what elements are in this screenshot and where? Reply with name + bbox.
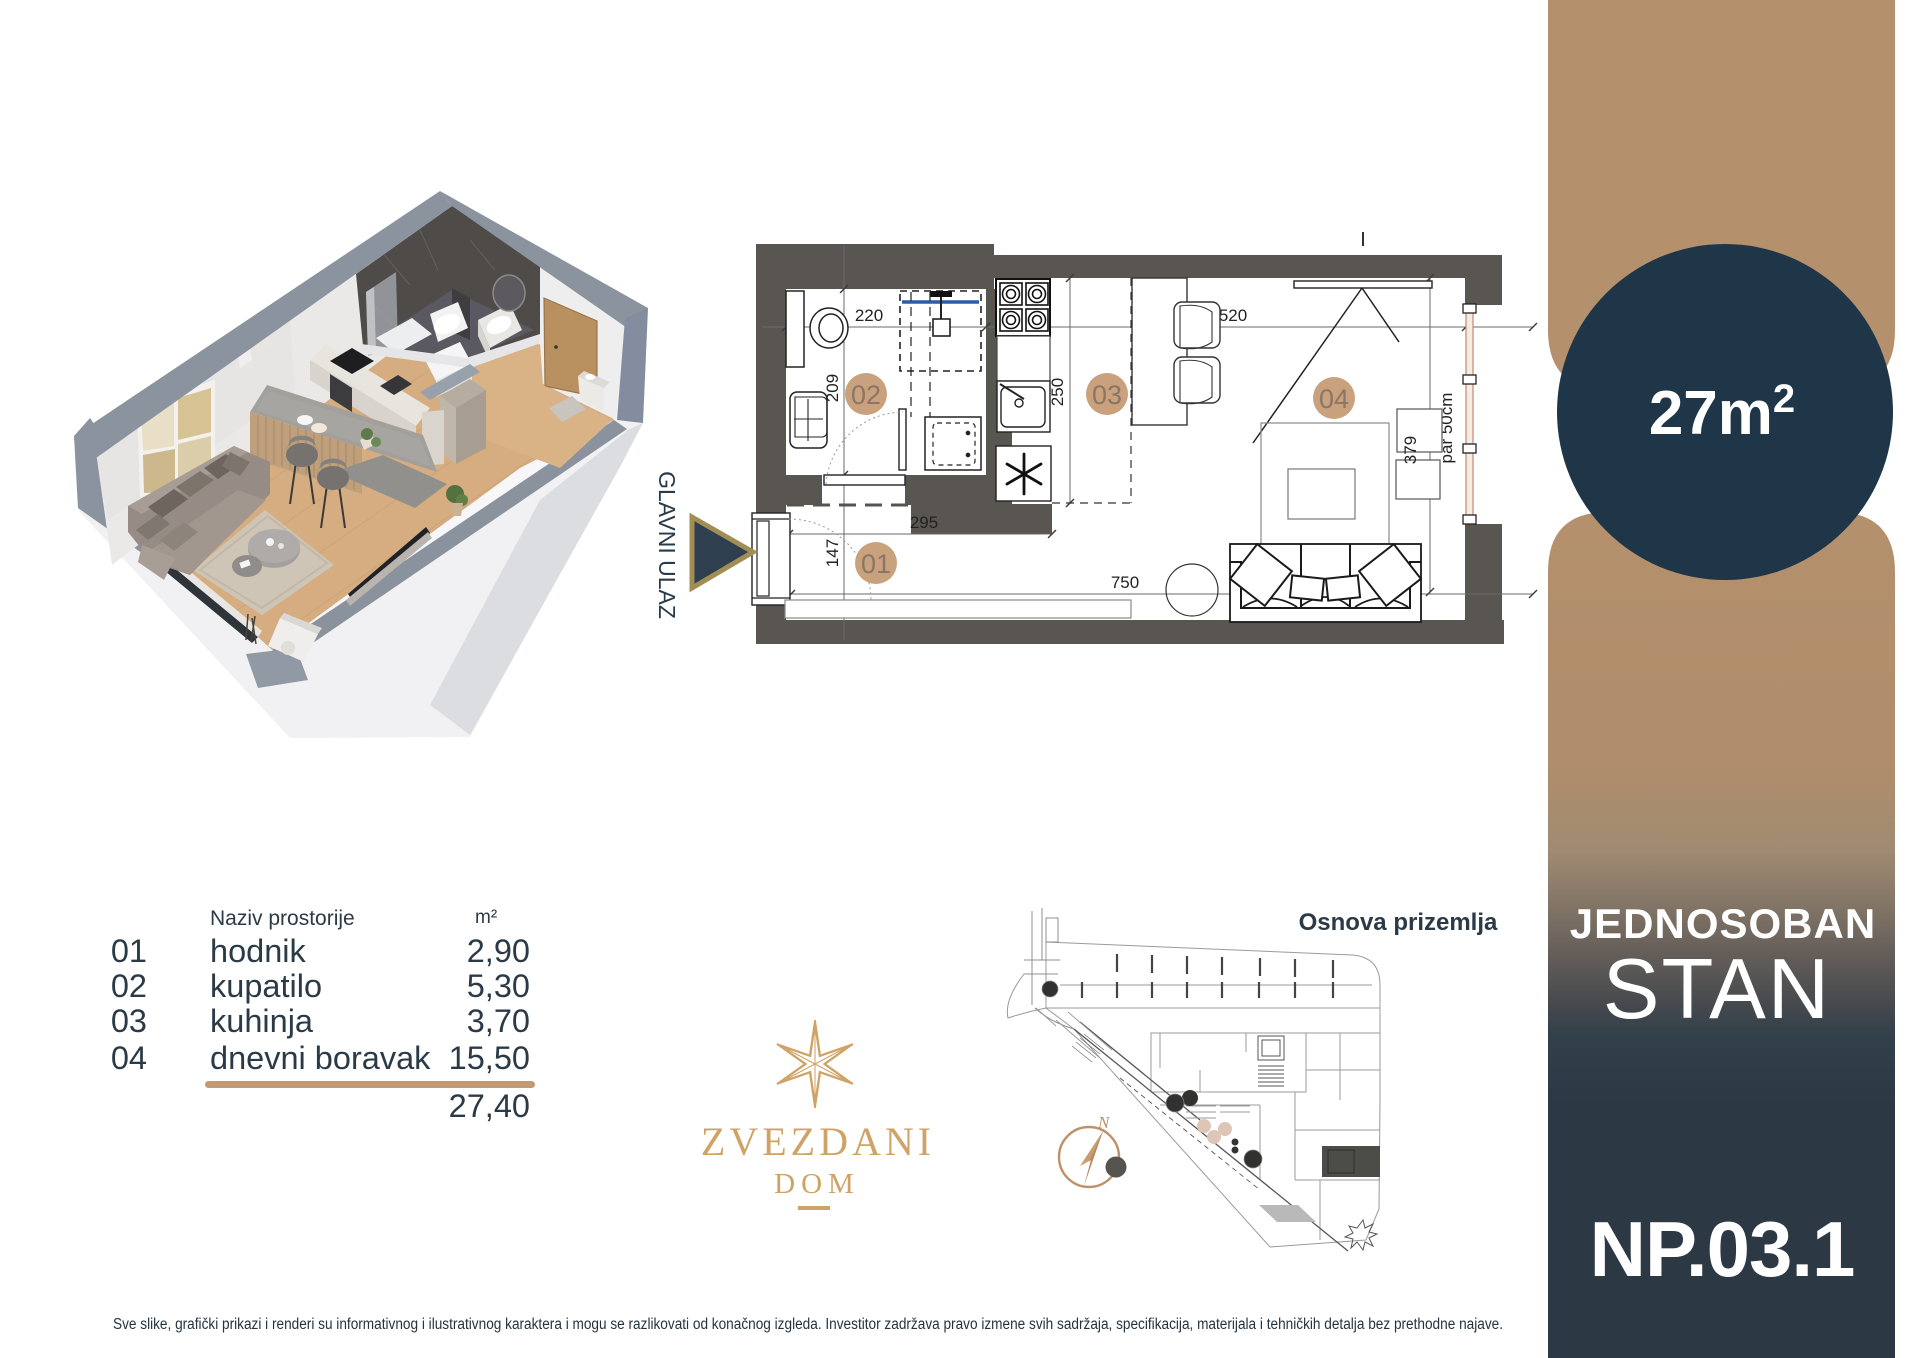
svg-text:Naziv prostorije: Naziv prostorije — [210, 907, 355, 930]
svg-text:03: 03 — [111, 1003, 147, 1039]
svg-text:295: 295 — [910, 513, 938, 532]
svg-text:520: 520 — [1219, 306, 1247, 325]
svg-text:04: 04 — [1319, 384, 1349, 414]
svg-text:GLAVNI ULAZ: GLAVNI ULAZ — [654, 471, 680, 619]
svg-text:JEDNOSOBAN: JEDNOSOBAN — [1570, 900, 1876, 947]
svg-text:dnevni boravak: dnevni boravak — [210, 1040, 431, 1076]
svg-text:kuhinja: kuhinja — [210, 1003, 314, 1039]
svg-text:Sve slike, grafički prikazi i: Sve slike, grafički prikazi i renderi su… — [113, 1316, 1503, 1333]
svg-text:kupatilo: kupatilo — [210, 968, 322, 1004]
svg-text:27,40: 27,40 — [449, 1088, 530, 1124]
svg-text:01: 01 — [861, 549, 891, 579]
svg-text:15,50: 15,50 — [449, 1040, 530, 1076]
svg-text:2,90: 2,90 — [467, 933, 530, 969]
svg-text:379: 379 — [1401, 436, 1420, 464]
svg-text:5,30: 5,30 — [467, 968, 530, 1004]
svg-text:02: 02 — [111, 968, 147, 1004]
svg-text:DOM: DOM — [774, 1168, 860, 1200]
svg-text:N: N — [1097, 1113, 1111, 1132]
svg-text:hodnik: hodnik — [210, 933, 307, 969]
svg-text:Osnova prizemlja: Osnova prizemlja — [1299, 909, 1498, 936]
svg-text:02: 02 — [851, 380, 881, 410]
svg-text:250: 250 — [1048, 378, 1067, 406]
svg-text:3,70: 3,70 — [467, 1003, 530, 1039]
svg-text:01: 01 — [111, 933, 147, 969]
svg-text:04: 04 — [111, 1040, 147, 1076]
svg-text:220: 220 — [855, 306, 883, 325]
svg-text:147: 147 — [823, 539, 842, 567]
svg-text:m²: m² — [475, 907, 497, 928]
svg-text:STAN: STAN — [1603, 942, 1831, 1037]
svg-text:750: 750 — [1111, 573, 1139, 592]
svg-text:NP.03.1: NP.03.1 — [1590, 1205, 1855, 1293]
svg-text:03: 03 — [1092, 380, 1122, 410]
svg-text:ZVEZDANI: ZVEZDANI — [701, 1119, 935, 1164]
